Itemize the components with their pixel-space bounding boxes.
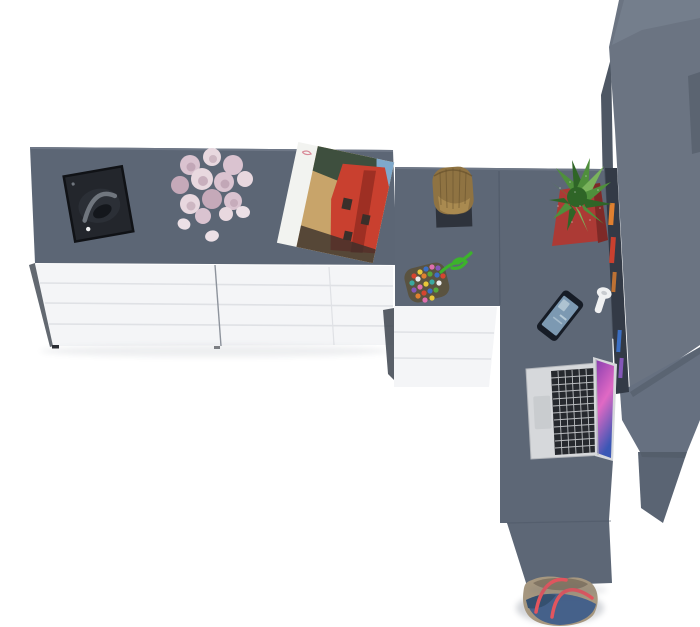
bead xyxy=(427,271,432,276)
bead xyxy=(422,297,427,302)
bead xyxy=(429,264,434,269)
rose-core xyxy=(198,176,208,186)
bead xyxy=(423,266,428,271)
rose xyxy=(237,171,253,187)
bead xyxy=(411,287,416,292)
underdesk-front xyxy=(394,306,497,387)
laptop-screen xyxy=(596,360,614,458)
bead xyxy=(434,272,439,277)
bead xyxy=(409,280,414,285)
bead xyxy=(429,295,434,300)
rose xyxy=(195,208,211,224)
bead xyxy=(433,287,438,292)
bead xyxy=(417,269,422,274)
headphones-tray xyxy=(64,166,134,241)
drawer-seam xyxy=(394,332,494,333)
drawer-seam xyxy=(394,358,491,359)
scene-canvas xyxy=(0,0,700,627)
cactus-center xyxy=(567,187,587,207)
rose xyxy=(202,189,222,209)
rose-core xyxy=(230,199,238,207)
furniture-render-image xyxy=(0,0,700,627)
rose xyxy=(219,207,233,221)
rose-core xyxy=(221,180,230,189)
rose-core xyxy=(209,155,217,163)
bead xyxy=(421,290,426,295)
bead xyxy=(415,276,420,281)
rose xyxy=(223,155,243,175)
bead xyxy=(440,273,445,278)
bead xyxy=(435,265,440,270)
bead xyxy=(421,273,426,278)
bead xyxy=(427,288,432,293)
bead xyxy=(436,280,441,285)
sideboard-foot xyxy=(52,345,59,349)
underdesk-drawers xyxy=(383,306,497,387)
rose-core xyxy=(187,202,196,211)
bead xyxy=(415,293,420,298)
floor-shadow xyxy=(527,584,607,596)
macbook-laptop xyxy=(526,357,617,461)
laptop-trackpad xyxy=(533,396,552,430)
rose-core xyxy=(187,163,196,172)
wooden-log-planter xyxy=(431,166,474,228)
tote-bag xyxy=(516,576,604,626)
cabinet-step-edge-2 xyxy=(640,452,687,458)
magazine-poster xyxy=(277,142,394,263)
bead xyxy=(429,279,434,284)
rose xyxy=(171,176,189,194)
bead xyxy=(423,281,428,286)
bead xyxy=(417,284,422,289)
floor-shadow xyxy=(40,345,390,357)
